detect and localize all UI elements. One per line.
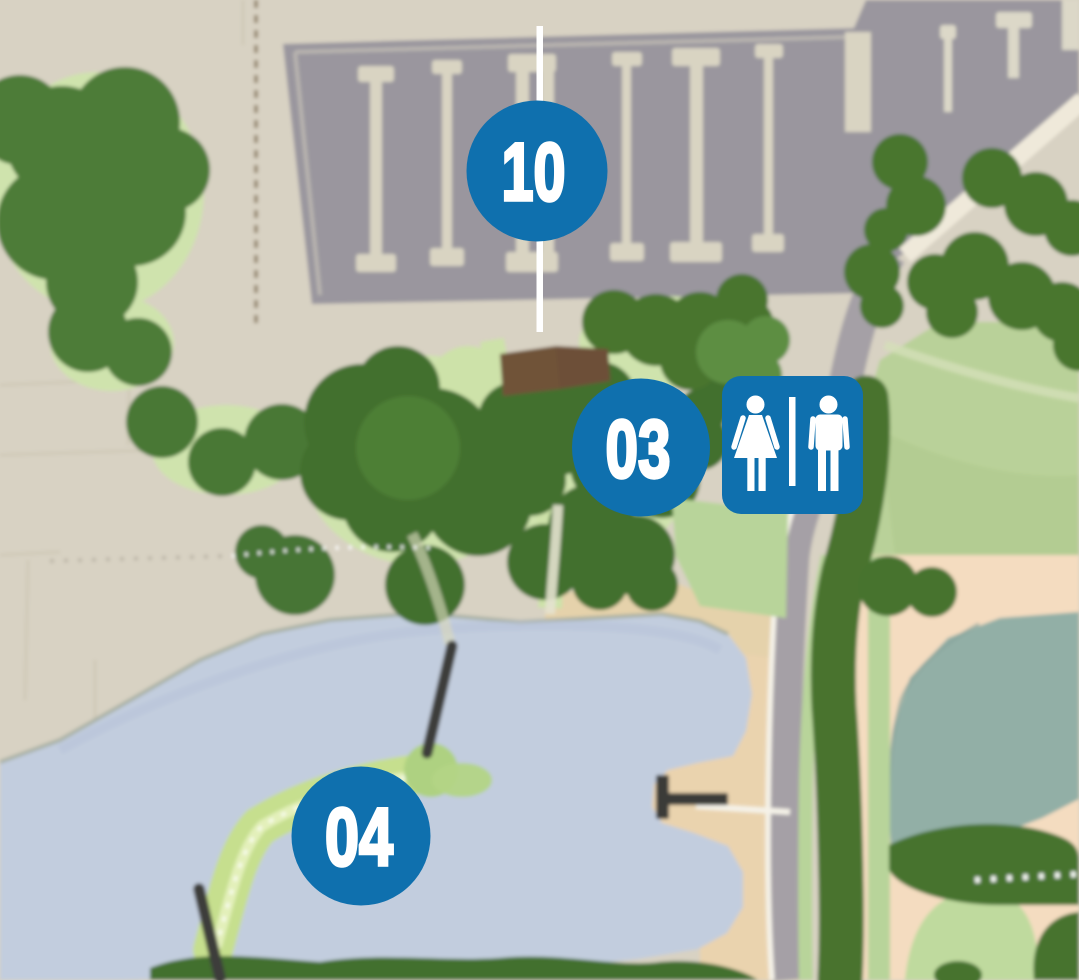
svg-text:03: 03 [606,404,671,495]
svg-text:04: 04 [325,792,393,883]
svg-text:10: 10 [502,127,566,218]
